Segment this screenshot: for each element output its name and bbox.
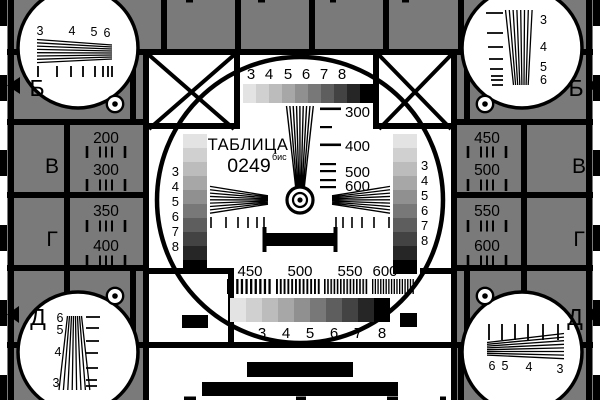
title-suffix: бис [272, 152, 287, 162]
scale-numbers-right: 34 56 78 [421, 158, 428, 248]
svg-text:8: 8 [172, 239, 179, 254]
svg-text:5: 5 [306, 325, 314, 342]
svg-text:5: 5 [421, 188, 428, 203]
svg-text:6: 6 [330, 325, 338, 342]
test-card: 34 56 78 300 400 500 600 ТАБЛИЦА [0, 0, 600, 400]
svg-text:4: 4 [540, 40, 547, 54]
svg-text:8: 8 [338, 66, 346, 83]
black-patch [400, 313, 417, 327]
svg-text:4: 4 [55, 345, 62, 359]
edge-marker-g: Г [573, 228, 584, 251]
svg-text:3: 3 [258, 325, 266, 342]
svg-text:3: 3 [421, 158, 428, 173]
svg-text:7: 7 [320, 66, 328, 83]
svg-text:6: 6 [421, 203, 428, 218]
short-bar [247, 362, 353, 377]
grayscale-strip-right [393, 134, 417, 274]
edge-marker-v: В [572, 155, 586, 178]
target-icon-bottom-left [107, 288, 123, 304]
black-patch [182, 315, 208, 328]
scale-numbers-left: 34 56 78 [172, 164, 179, 254]
edge-marker-g: Г [46, 228, 57, 251]
corner-circle-bottom-right: 65 43 [462, 292, 582, 400]
svg-text:7: 7 [421, 218, 428, 233]
svg-text:6: 6 [540, 73, 547, 87]
grayscale-strip-bottom [230, 298, 390, 322]
svg-text:4: 4 [421, 173, 428, 188]
svg-text:3: 3 [37, 24, 44, 38]
svg-text:450: 450 [237, 263, 262, 280]
svg-text:5: 5 [57, 323, 64, 337]
svg-text:550: 550 [337, 263, 362, 280]
svg-text:7: 7 [172, 224, 179, 239]
svg-text:5: 5 [502, 359, 509, 373]
svg-text:4: 4 [265, 66, 273, 83]
target-icon-top-left [107, 96, 123, 112]
grayscale-strip-left [183, 134, 207, 274]
svg-text:6: 6 [302, 66, 310, 83]
edge-marker-d: Д [567, 304, 583, 330]
wedge-label-300: 300 [345, 104, 370, 121]
svg-text:6: 6 [104, 26, 111, 40]
edge-castellation-right [593, 0, 600, 400]
svg-text:4: 4 [526, 360, 533, 374]
svg-text:3: 3 [53, 376, 60, 390]
svg-text:5: 5 [284, 66, 292, 83]
corner-circle-top-right: 34 56 [462, 0, 582, 108]
target-icon-top-right [477, 96, 493, 112]
panel-value: 350 [93, 203, 119, 220]
svg-text:8: 8 [378, 325, 386, 342]
long-bar [202, 382, 398, 396]
panel-value: 200 [93, 130, 119, 147]
panel-value: 600 [474, 238, 500, 255]
edge-marker-b: Б [29, 75, 44, 101]
svg-text:4: 4 [282, 325, 290, 342]
svg-text:8: 8 [421, 233, 428, 248]
svg-text:7: 7 [354, 325, 362, 342]
svg-text:4: 4 [172, 179, 179, 194]
panel-value: 550 [474, 203, 500, 220]
target-icon-bottom-right [477, 288, 493, 304]
svg-text:6: 6 [172, 209, 179, 224]
panel-value: 500 [474, 162, 500, 179]
title-number: 0249 [227, 155, 270, 177]
svg-text:6: 6 [489, 359, 496, 373]
edge-marker-d: Д [30, 304, 46, 330]
panel-value: 450 [474, 130, 500, 147]
svg-text:4: 4 [69, 24, 76, 38]
svg-text:3: 3 [557, 362, 564, 376]
svg-text:5: 5 [540, 60, 547, 74]
panel-value: 300 [93, 162, 119, 179]
panel-value: 400 [93, 238, 119, 255]
svg-text:3: 3 [172, 164, 179, 179]
svg-text:5: 5 [172, 194, 179, 209]
grayscale-strip-top [243, 84, 373, 103]
svg-text:5: 5 [91, 25, 98, 39]
svg-text:3: 3 [540, 13, 547, 27]
edge-castellation-left [0, 0, 7, 400]
edge-marker-b: Б [568, 75, 583, 101]
svg-text:500: 500 [287, 263, 312, 280]
edge-marker-v: В [45, 155, 59, 178]
svg-text:600: 600 [372, 263, 397, 280]
wedge-label-400: 400 [345, 138, 370, 155]
svg-text:3: 3 [247, 66, 255, 83]
